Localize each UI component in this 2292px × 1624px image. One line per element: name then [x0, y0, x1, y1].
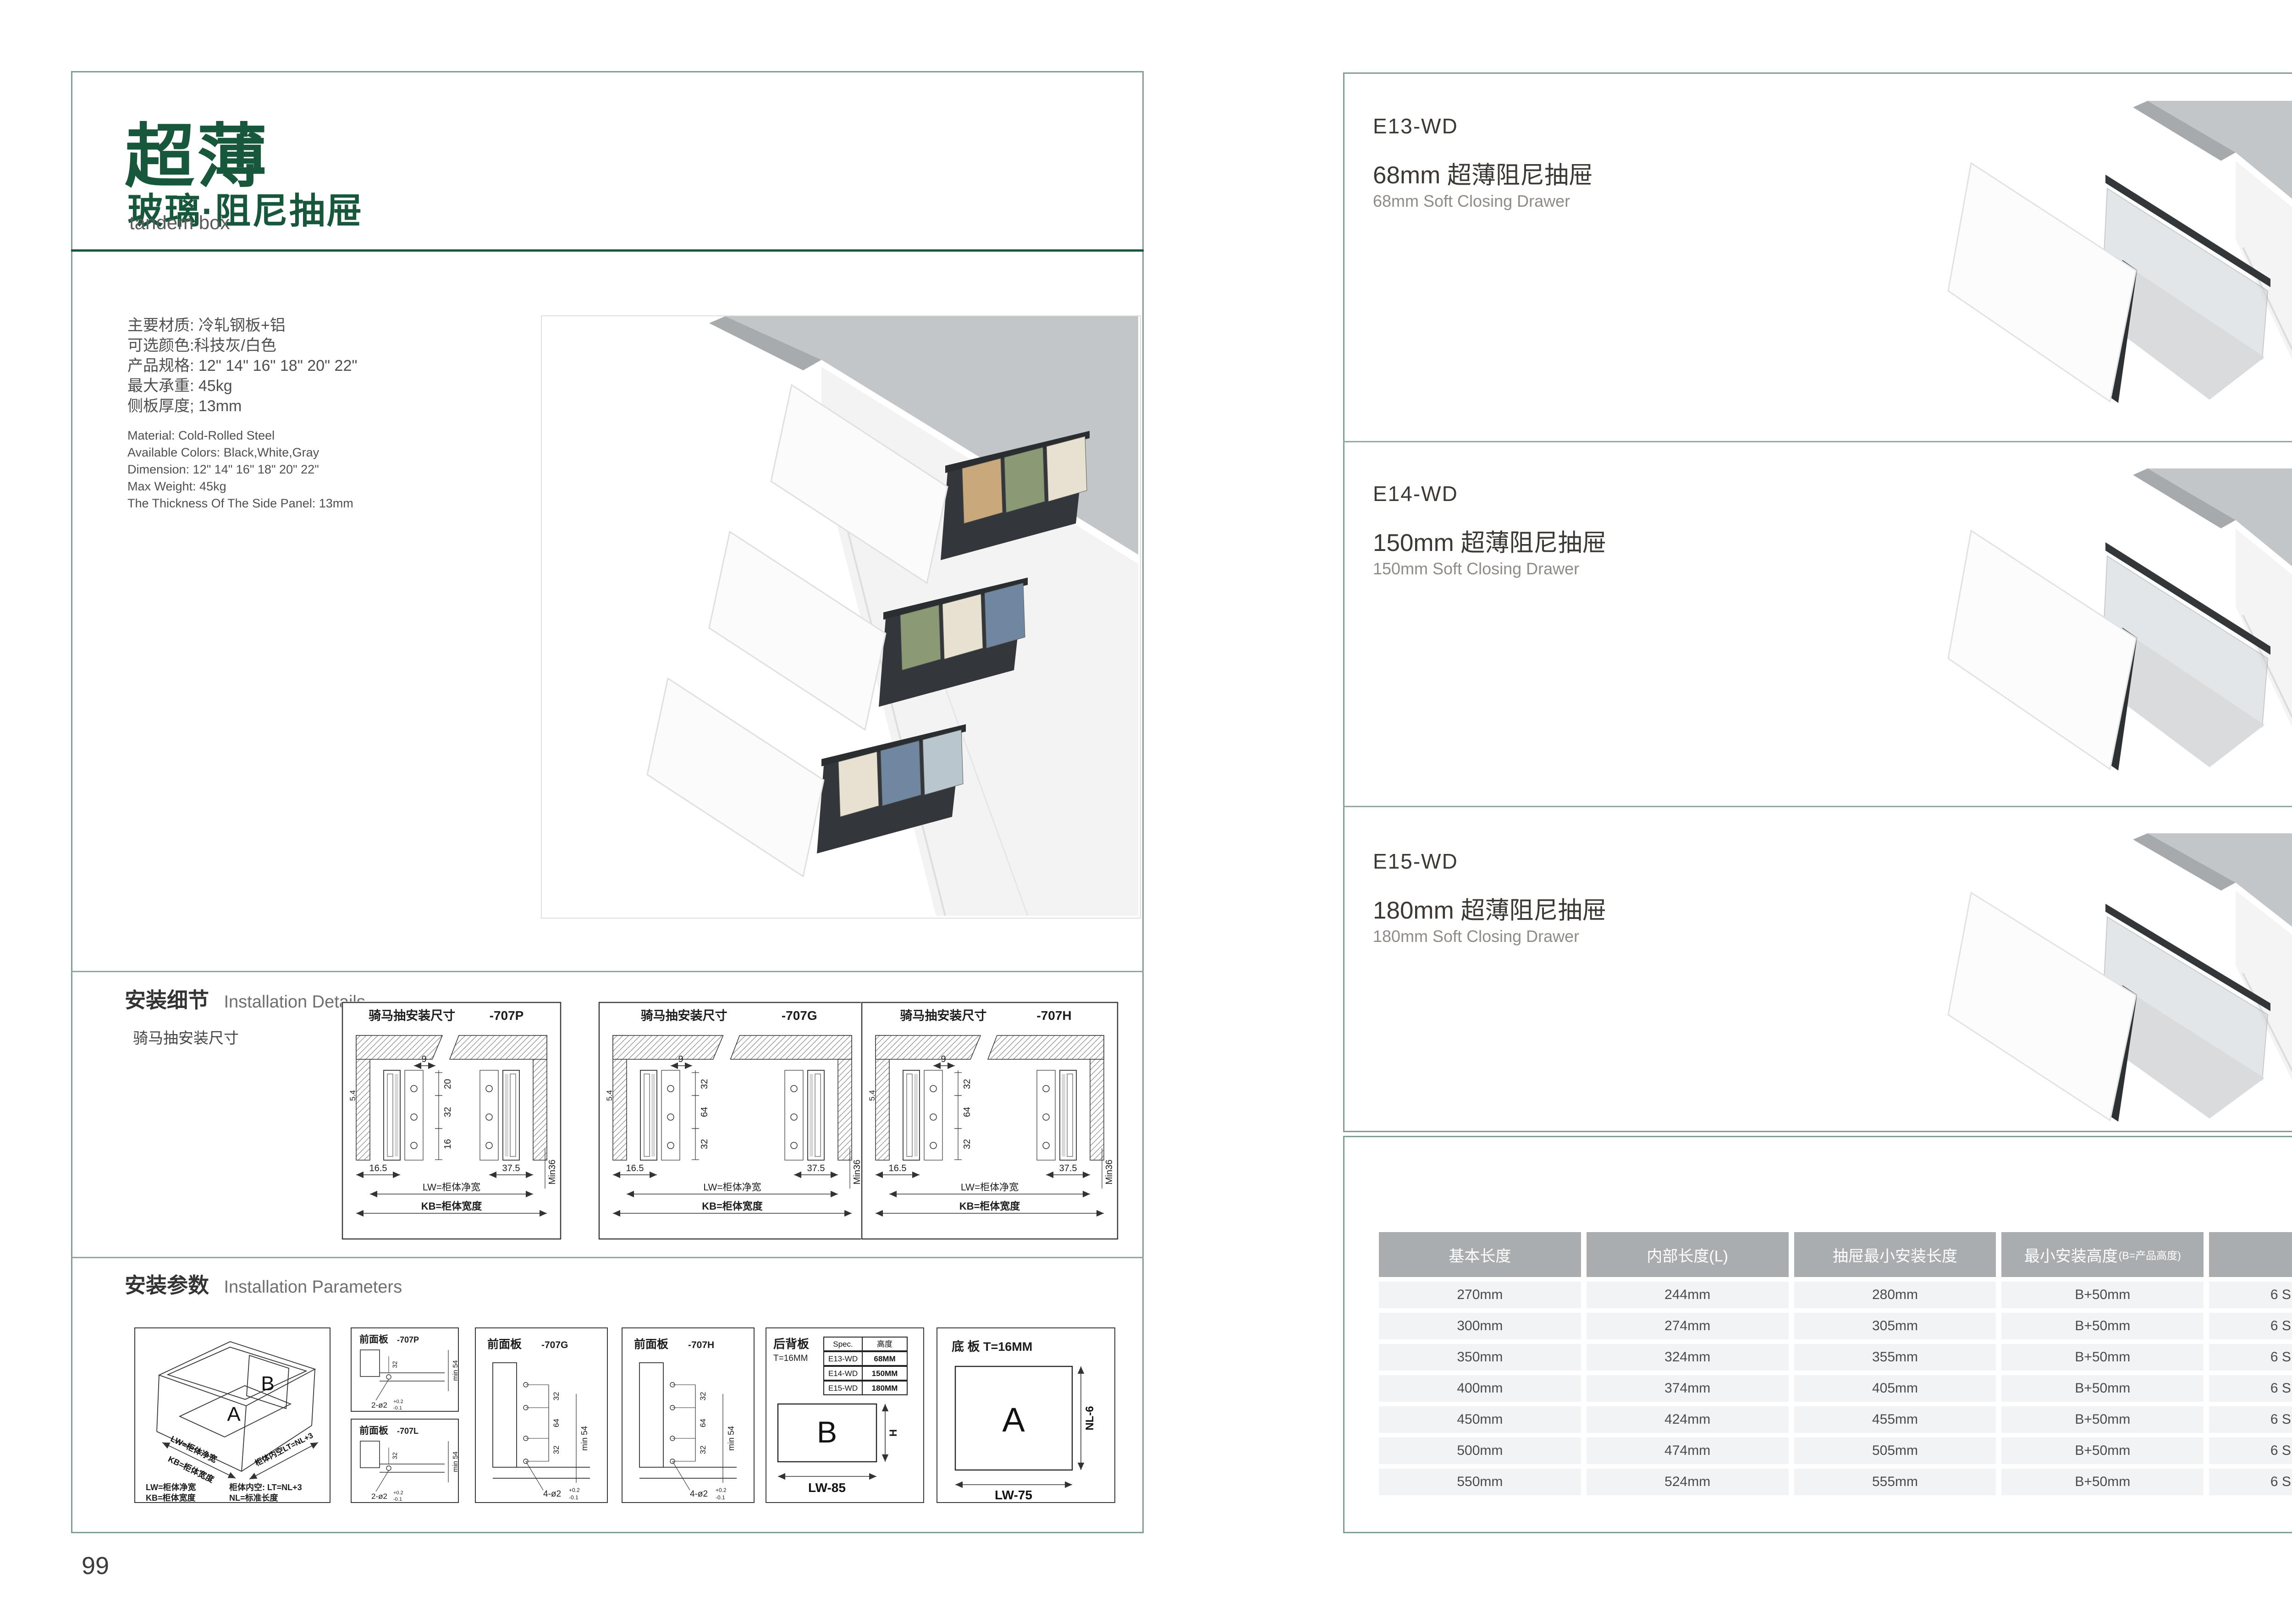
- svg-text:+0.2: +0.2: [393, 1399, 403, 1404]
- svg-text:前面板: 前面板: [359, 1425, 389, 1436]
- svg-text:2-ø2: 2-ø2: [371, 1492, 387, 1501]
- svg-text:NL=标准长度: NL=标准长度: [229, 1493, 279, 1503]
- svg-text:20: 20: [443, 1079, 453, 1089]
- table-cell: 505mm: [1794, 1437, 1996, 1464]
- table-cell: 355mm: [1794, 1344, 1996, 1371]
- page-subtitle-en: tandem box: [129, 212, 230, 234]
- table-cell: 244mm: [1587, 1282, 1789, 1308]
- product-name-cn: 180mm 超薄阻尼抽屉: [1373, 891, 1606, 926]
- front-panel-707H: 前面板-707H326432min 544-ø2+0.2-0.1: [621, 1327, 755, 1503]
- table-cell: B+50mm: [2001, 1469, 2204, 1495]
- table-cell: 424mm: [1587, 1406, 1789, 1433]
- bottom-panel-drawing: 底 板 T=16MMANL-6LW-75: [936, 1327, 1116, 1503]
- svg-text:+0.2: +0.2: [569, 1487, 580, 1493]
- front-panel-707G: 前面板-707G326432min 544-ø2+0.2-0.1: [474, 1327, 608, 1503]
- table-cell: 474mm: [1587, 1437, 1789, 1464]
- svg-text:-707G: -707G: [782, 1008, 817, 1023]
- table-cell: B+50mm: [2001, 1282, 2204, 1308]
- svg-text:-707P: -707P: [397, 1335, 419, 1344]
- svg-text:2-ø2: 2-ø2: [371, 1401, 387, 1409]
- table-cell: 274mm: [1587, 1313, 1789, 1339]
- svg-text:KB=柜体宽度: KB=柜体宽度: [146, 1493, 196, 1503]
- svg-text:LW-75: LW-75: [995, 1488, 1032, 1502]
- table-cell: 6 SETC/TNB: [2209, 1344, 2292, 1371]
- svg-text:min 54: min 54: [452, 1360, 459, 1381]
- table-cell: B+50mm: [2001, 1313, 2204, 1339]
- svg-text:32: 32: [700, 1139, 710, 1149]
- installation-drawing-707P: 骑马抽安装尺寸-707P 9 20 32 165.416.537.5Min36L…: [342, 1002, 562, 1240]
- table-cell: 555mm: [1794, 1469, 1996, 1495]
- table-row: 400mm374mm405mmB+50mm6 SETC/TNB: [1379, 1375, 2292, 1402]
- svg-text:B: B: [817, 1415, 837, 1449]
- spec-line: Material: Cold-Rolled Steel: [127, 427, 353, 444]
- svg-text:5.4: 5.4: [868, 1090, 876, 1101]
- svg-text:-0.1: -0.1: [393, 1405, 402, 1411]
- heading-en: Installation Parameters: [224, 1277, 402, 1297]
- table-cell: 6 SETC/TNB: [2209, 1437, 2292, 1464]
- spec-line: Dimension: 12" 14" 16" 18" 20" 22": [127, 461, 353, 478]
- section-divider: [71, 1257, 1144, 1258]
- product-row-divider: [1343, 806, 2292, 807]
- svg-text:-707L: -707L: [397, 1426, 419, 1436]
- product-name-cn: 150mm 超薄阻尼抽屉: [1373, 523, 1606, 558]
- table-header-cell: 抽屉最小安装长度: [1794, 1232, 1996, 1277]
- svg-text:柜体内空: LT=NL+3: 柜体内空: LT=NL+3: [229, 1482, 302, 1492]
- svg-text:后背板: 后背板: [773, 1337, 809, 1351]
- svg-text:T=16MM: T=16MM: [773, 1354, 808, 1363]
- table-cell: 6 SETC/TNB: [2209, 1375, 2292, 1402]
- spec-line: 主要材质: 冷轧钢板+铝: [127, 315, 357, 336]
- svg-text:Spec.: Spec.: [833, 1340, 853, 1349]
- svg-text:骑马抽安装尺寸: 骑马抽安装尺寸: [900, 1009, 986, 1023]
- table-cell: 400mm: [1379, 1375, 1581, 1402]
- svg-text:4-ø2: 4-ø2: [543, 1489, 561, 1499]
- svg-text:64: 64: [962, 1107, 972, 1117]
- svg-text:9: 9: [678, 1054, 683, 1064]
- svg-text:LW-85: LW-85: [808, 1481, 846, 1495]
- svg-text:H: H: [887, 1429, 899, 1437]
- table-cell: 450mm: [1379, 1406, 1581, 1433]
- spec-line: Available Colors: Black,White,Gray: [127, 444, 353, 461]
- svg-text:骑马抽安装尺寸: 骑马抽安装尺寸: [369, 1009, 455, 1023]
- table-cell: 455mm: [1794, 1406, 1996, 1433]
- specs-en-list: Material: Cold-Rolled SteelAvailable Col…: [127, 427, 353, 512]
- table-header-cell: 包装: [2209, 1232, 2292, 1277]
- product-photo: [1928, 833, 2292, 1122]
- installation-details-heading: 安装细节 Installation Details: [125, 984, 365, 1014]
- product-row-divider: [1343, 441, 2292, 442]
- svg-text:前面板: 前面板: [359, 1334, 389, 1345]
- table-cell: 280mm: [1794, 1282, 1996, 1308]
- svg-text:68MM: 68MM: [874, 1354, 895, 1363]
- svg-text:前面板: 前面板: [634, 1338, 668, 1351]
- heading-cn: 安装参数: [125, 1273, 209, 1297]
- svg-text:32: 32: [962, 1139, 972, 1149]
- table-row: 300mm274mm305mmB+50mm6 SETC/TNB: [1379, 1313, 2292, 1339]
- tandem-box-photo: [541, 315, 1141, 919]
- svg-text:KB=柜体宽度: KB=柜体宽度: [959, 1200, 1021, 1212]
- back-panel-drawing: 后背板T=16MMSpec.高度E13-WD68MME14-WD150MME15…: [765, 1327, 925, 1503]
- table-cell: 6 SETC/TNB: [2209, 1406, 2292, 1433]
- svg-text:+0.2: +0.2: [716, 1487, 727, 1493]
- svg-text:64: 64: [552, 1419, 561, 1427]
- svg-text:KB=柜体宽度: KB=柜体宽度: [421, 1200, 483, 1212]
- svg-text:32: 32: [699, 1392, 707, 1401]
- product-code: E14-WD: [1373, 481, 1458, 506]
- svg-text:E15-WD: E15-WD: [828, 1384, 858, 1393]
- table-cell: 6 SETC/TNB: [2209, 1469, 2292, 1495]
- svg-text:E14-WD: E14-WD: [828, 1369, 858, 1378]
- svg-text:9: 9: [421, 1054, 426, 1064]
- svg-text:A: A: [227, 1403, 241, 1426]
- table-cell: 6 SETC/TNB: [2209, 1282, 2292, 1308]
- svg-text:32: 32: [552, 1446, 561, 1454]
- product-code: E13-WD: [1373, 114, 1458, 138]
- svg-text:前面板: 前面板: [487, 1338, 522, 1351]
- table-row: 550mm524mm555mmB+50mm6 SETC/TNB: [1379, 1469, 2292, 1495]
- front-panel-707L: 前面板-707L32min 542-ø2+0.2-0.1: [350, 1418, 459, 1503]
- svg-text:-0.1: -0.1: [393, 1497, 402, 1502]
- svg-text:A: A: [1002, 1401, 1025, 1439]
- table-header-cell: 基本长度: [1379, 1232, 1581, 1277]
- svg-text:37.5: 37.5: [502, 1163, 520, 1173]
- svg-text:-707G: -707G: [541, 1340, 568, 1350]
- iso-cabinet-drawing: ABLW=柜体净宽KB=柜体宽度柜体内空LT=NL+3LW=柜体净宽柜体内空: …: [134, 1327, 331, 1503]
- svg-text:LW=柜体净宽: LW=柜体净宽: [146, 1482, 196, 1492]
- svg-text:min 54: min 54: [727, 1426, 736, 1451]
- product-photo: [1928, 468, 2292, 771]
- svg-text:min 54: min 54: [580, 1426, 589, 1451]
- table-row: 270mm244mm280mmB+50mm6 SETC/TNB: [1379, 1282, 2292, 1308]
- front-panel-707P: 前面板-707P32min 542-ø2+0.2-0.1: [350, 1327, 459, 1412]
- svg-text:LW=柜体净宽: LW=柜体净宽: [423, 1182, 480, 1193]
- svg-text:B: B: [261, 1372, 274, 1395]
- svg-text:-707H: -707H: [1036, 1008, 1071, 1023]
- table-cell: 6 SETC/TNB: [2209, 1313, 2292, 1339]
- svg-text:5.4: 5.4: [348, 1090, 357, 1101]
- svg-text:32: 32: [962, 1079, 972, 1089]
- installation-drawing-707G: 骑马抽安装尺寸-707G 9 32 64 325.416.537.5Min36L…: [598, 1002, 866, 1240]
- svg-text:32: 32: [391, 1452, 398, 1459]
- svg-text:-707H: -707H: [688, 1340, 714, 1350]
- product-code: E15-WD: [1373, 849, 1458, 874]
- table-cell: 305mm: [1794, 1313, 1996, 1339]
- svg-text:32: 32: [443, 1107, 453, 1117]
- svg-text:E13-WD: E13-WD: [828, 1354, 858, 1363]
- table-cell: 550mm: [1379, 1469, 1581, 1495]
- spec-line: The Thickness Of The Side Panel: 13mm: [127, 495, 353, 512]
- specs-cn-list: 主要材质: 冷轧钢板+铝可选颜色:科技灰/白色产品规格: 12" 14" 16"…: [127, 315, 357, 416]
- installation-parameters-heading: 安装参数 Installation Parameters: [125, 1269, 402, 1299]
- table-header-row: 基本长度内部长度(L)抽屉最小安装长度最小安装高度(B=产品高度)包装: [1379, 1232, 2292, 1277]
- table-cell: 300mm: [1379, 1313, 1581, 1339]
- spec-line: 可选颜色:科技灰/白色: [127, 336, 357, 356]
- catalog-spread: 超薄 玻璃·阻尼抽屉 tandem box 主要材质: 冷轧钢板+铝可选颜色:科…: [0, 0, 2292, 1624]
- svg-text:LW=柜体净宽: LW=柜体净宽: [961, 1182, 1019, 1193]
- svg-text:37.5: 37.5: [807, 1163, 825, 1173]
- svg-text:Min36: Min36: [547, 1160, 557, 1184]
- svg-text:9: 9: [941, 1054, 946, 1064]
- svg-text:NL-6: NL-6: [1084, 1406, 1096, 1430]
- svg-text:16.5: 16.5: [369, 1163, 387, 1173]
- svg-text:32: 32: [552, 1392, 561, 1401]
- svg-text:+0.2: +0.2: [393, 1490, 403, 1496]
- table-cell: 500mm: [1379, 1437, 1581, 1464]
- product-name-en: 68mm Soft Closing Drawer: [1373, 192, 1570, 211]
- svg-text:16.5: 16.5: [626, 1163, 644, 1173]
- installation-drawing-707H: 骑马抽安装尺寸-707H 9 32 64 325.416.537.5Min36L…: [861, 1002, 1118, 1240]
- table-header-note: (B=产品高度): [2119, 1247, 2181, 1262]
- svg-text:LW=柜体净宽: LW=柜体净宽: [703, 1182, 761, 1193]
- svg-text:32: 32: [391, 1361, 398, 1368]
- table-cell: B+50mm: [2001, 1437, 2204, 1464]
- table-row: 350mm324mm355mmB+50mm6 SETC/TNB: [1379, 1344, 2292, 1371]
- title-divider: [71, 249, 1144, 252]
- table-cell: 270mm: [1379, 1282, 1581, 1308]
- svg-text:64: 64: [699, 1419, 707, 1427]
- table-cell: 405mm: [1794, 1375, 1996, 1402]
- svg-text:-0.1: -0.1: [716, 1494, 725, 1501]
- table-cell: B+50mm: [2001, 1406, 2204, 1433]
- details-subheading: 骑马抽安装尺寸: [133, 1026, 239, 1048]
- product-photo: [1928, 101, 2292, 403]
- svg-text:32: 32: [700, 1079, 710, 1089]
- svg-text:150MM: 150MM: [872, 1369, 898, 1378]
- table-cell: 324mm: [1587, 1344, 1789, 1371]
- table-header-cell: 最小安装高度(B=产品高度): [2001, 1232, 2204, 1277]
- svg-text:37.5: 37.5: [1059, 1163, 1077, 1173]
- svg-text:5.4: 5.4: [605, 1090, 614, 1101]
- spec-line: 最大承重: 45kg: [127, 376, 357, 396]
- product-name-en: 150mm Soft Closing Drawer: [1373, 559, 1579, 578]
- svg-text:16: 16: [443, 1139, 453, 1149]
- svg-text:KB=柜体宽度: KB=柜体宽度: [702, 1200, 763, 1212]
- section-divider: [71, 971, 1144, 972]
- table-row: 500mm474mm505mmB+50mm6 SETC/TNB: [1379, 1437, 2292, 1464]
- svg-text:高度: 高度: [877, 1340, 893, 1349]
- product-name-cn: 68mm 超薄阻尼抽屉: [1373, 156, 1593, 191]
- svg-text:180MM: 180MM: [872, 1384, 898, 1393]
- table-row: 450mm424mm455mmB+50mm6 SETC/TNB: [1379, 1406, 2292, 1433]
- table-cell: 524mm: [1587, 1469, 1789, 1495]
- spec-line: 侧板厚度; 13mm: [127, 396, 357, 416]
- svg-text:64: 64: [700, 1107, 710, 1117]
- table-header-cell: 内部长度(L): [1587, 1232, 1789, 1277]
- table-cell: B+50mm: [2001, 1344, 2204, 1371]
- spec-line: 产品规格: 12" 14" 16" 18" 20" 22": [127, 356, 357, 376]
- table-cell: B+50mm: [2001, 1375, 2204, 1402]
- svg-text:-0.1: -0.1: [569, 1494, 579, 1501]
- svg-text:4-ø2: 4-ø2: [690, 1489, 708, 1499]
- page-number-left: 99: [82, 1552, 109, 1580]
- svg-text:Min36: Min36: [1104, 1160, 1114, 1184]
- svg-text:16.5: 16.5: [889, 1163, 907, 1173]
- size-spec-table: 基本长度内部长度(L)抽屉最小安装长度最小安装高度(B=产品高度)包装270mm…: [1379, 1232, 2292, 1495]
- heading-cn: 安装细节: [125, 988, 209, 1012]
- svg-text:32: 32: [699, 1446, 707, 1454]
- table-cell: 374mm: [1587, 1375, 1789, 1402]
- svg-text:底 板 T=16MM: 底 板 T=16MM: [952, 1339, 1032, 1354]
- product-name-en: 180mm Soft Closing Drawer: [1373, 927, 1579, 946]
- svg-text:骑马抽安装尺寸: 骑马抽安装尺寸: [641, 1009, 727, 1023]
- spec-line: Max Weight: 45kg: [127, 478, 353, 495]
- svg-text:min 54: min 54: [452, 1451, 459, 1472]
- table-cell: 350mm: [1379, 1344, 1581, 1371]
- svg-text:-707P: -707P: [490, 1008, 524, 1023]
